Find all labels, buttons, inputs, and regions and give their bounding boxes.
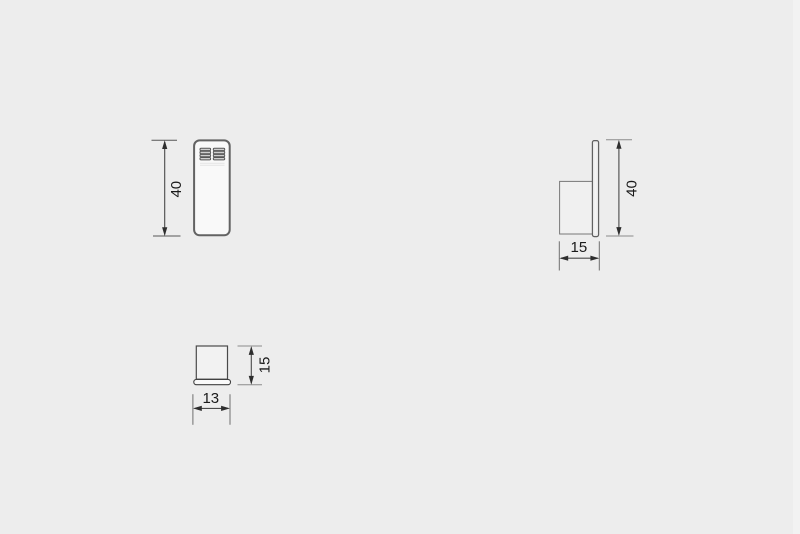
- svg-text:15: 15: [571, 239, 588, 256]
- svg-text:15: 15: [256, 357, 273, 374]
- svg-text:40: 40: [623, 180, 640, 197]
- svg-text:13: 13: [202, 390, 219, 407]
- svg-text:40: 40: [168, 181, 185, 198]
